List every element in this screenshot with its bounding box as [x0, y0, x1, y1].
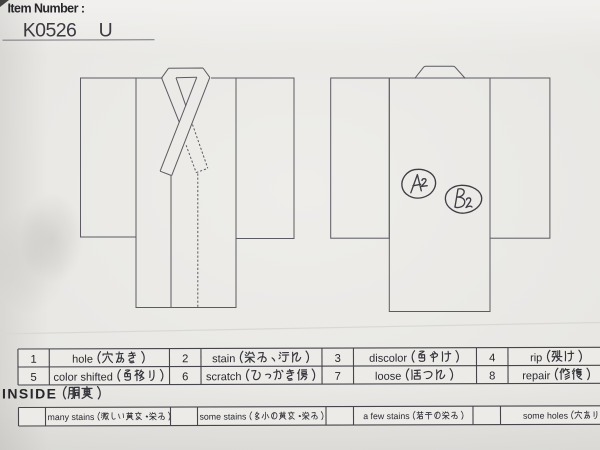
- svg-text:scratch: scratch: [206, 371, 242, 383]
- svg-text:4: 4: [489, 352, 495, 364]
- svg-text:5: 5: [30, 372, 36, 384]
- svg-text:3: 3: [335, 353, 341, 365]
- svg-text:some holes: some holes: [523, 411, 569, 421]
- svg-text:INSIDE: INSIDE: [2, 385, 56, 401]
- svg-text:Item Number :: Item Number :: [8, 2, 86, 16]
- svg-text:8: 8: [489, 370, 495, 382]
- svg-text:repair: repair: [522, 370, 550, 382]
- svg-text:K0526: K0526: [23, 19, 77, 41]
- svg-text:6: 6: [182, 371, 188, 383]
- svg-text:a few stains: a few stains: [363, 411, 410, 421]
- svg-text:stain: stain: [212, 353, 235, 365]
- svg-text:many stains: many stains: [47, 412, 95, 422]
- svg-text:discolor: discolor: [369, 353, 407, 365]
- svg-text:1: 1: [30, 354, 36, 366]
- svg-text:hole: hole: [72, 354, 93, 366]
- svg-text:loose: loose: [375, 371, 401, 383]
- svg-text:7: 7: [335, 371, 341, 383]
- svg-text:U: U: [99, 19, 113, 41]
- svg-text:color shifted: color shifted: [54, 372, 113, 384]
- svg-text:2: 2: [182, 353, 188, 365]
- svg-text:some stains: some stains: [199, 412, 247, 422]
- svg-text:rip: rip: [530, 352, 542, 364]
